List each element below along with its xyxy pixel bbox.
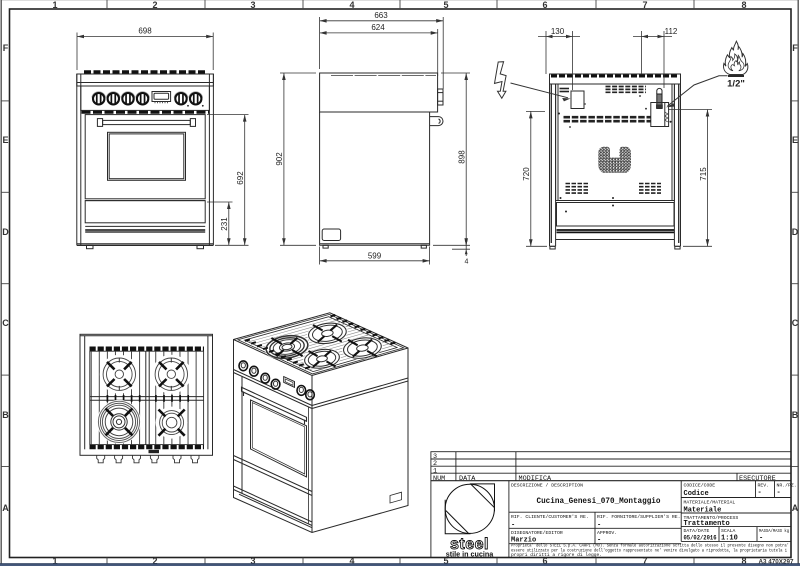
svg-text:112: 112	[665, 27, 678, 36]
svg-text:05/02/2016: 05/02/2016	[684, 534, 717, 541]
svg-text:5: 5	[443, 0, 448, 10]
svg-text:1/2": 1/2"	[727, 79, 745, 90]
svg-text:E: E	[792, 135, 798, 145]
svg-text:E: E	[2, 135, 8, 145]
svg-text:MASSA/MASS kg: MASSA/MASS kg	[759, 528, 789, 534]
svg-text:MATERIALE/MATERIAL: MATERIALE/MATERIAL	[684, 499, 736, 505]
svg-text:F: F	[3, 43, 9, 53]
svg-text:902: 902	[275, 152, 284, 166]
svg-text:REV.: REV.	[758, 483, 770, 489]
svg-text:-: -	[758, 489, 762, 497]
svg-text:599: 599	[368, 252, 382, 261]
svg-text:692: 692	[236, 171, 245, 185]
svg-text:NR./PZ.: NR./PZ.	[777, 483, 797, 489]
svg-text:CODICE/CODE: CODICE/CODE	[684, 483, 716, 489]
svg-text:DATA/DATE: DATA/DATE	[684, 528, 710, 534]
svg-text:A: A	[2, 503, 9, 513]
svg-text:F: F	[792, 43, 798, 53]
svg-text:898: 898	[458, 150, 467, 164]
svg-text:698: 698	[138, 27, 152, 36]
svg-text:4: 4	[465, 259, 469, 266]
svg-text:SCALA: SCALA	[721, 528, 736, 534]
svg-text:APPROV.: APPROV.	[597, 530, 617, 536]
svg-text:624: 624	[371, 23, 385, 32]
svg-text:B: B	[792, 410, 799, 420]
svg-text:8: 8	[741, 0, 746, 10]
svg-text:NUM: NUM	[433, 475, 445, 483]
svg-text:RIF. CLIENTE/CUSTOMER'S RE.: RIF. CLIENTE/CUSTOMER'S RE.	[511, 514, 589, 520]
svg-text:C: C	[792, 318, 799, 328]
svg-text:MODIFICA: MODIFICA	[519, 475, 553, 483]
svg-text:propri diritti a rigore di leg: propri diritti a rigore di legge.	[511, 552, 602, 558]
svg-text:D: D	[792, 227, 799, 237]
svg-text:D: D	[2, 227, 9, 237]
svg-text:130: 130	[551, 27, 565, 36]
svg-text:231: 231	[220, 217, 229, 231]
svg-text:DATA: DATA	[459, 475, 476, 483]
svg-text:DISEGNATORE/EDITOR: DISEGNATORE/EDITOR	[511, 530, 563, 536]
svg-text:3: 3	[250, 0, 255, 10]
svg-text:B: B	[2, 410, 9, 420]
svg-text:2: 2	[152, 0, 157, 10]
svg-text:4: 4	[349, 0, 354, 10]
svg-text:DESCRIZIONE / DESCRIPTION: DESCRIZIONE / DESCRIPTION	[511, 483, 583, 489]
svg-text:ESECUTORE: ESECUTORE	[739, 475, 776, 483]
svg-text:6: 6	[542, 0, 547, 10]
svg-text:7: 7	[642, 0, 647, 10]
svg-text:stile in cucina: stile in cucina	[446, 549, 495, 558]
svg-text:A: A	[792, 503, 799, 513]
svg-text:715: 715	[699, 167, 708, 181]
svg-text:Codice: Codice	[684, 490, 709, 498]
svg-text:C: C	[2, 318, 9, 328]
svg-text:1: 1	[52, 0, 57, 10]
svg-text:RIF. FORNITORE/SUPPLIER'S RE.: RIF. FORNITORE/SUPPLIER'S RE.	[597, 514, 680, 520]
svg-text:-: -	[777, 489, 781, 497]
svg-text:663: 663	[374, 11, 388, 20]
svg-text:720: 720	[522, 167, 531, 181]
svg-text:Cucina_Genesi_070_Montaggio: Cucina_Genesi_070_Montaggio	[537, 496, 661, 506]
